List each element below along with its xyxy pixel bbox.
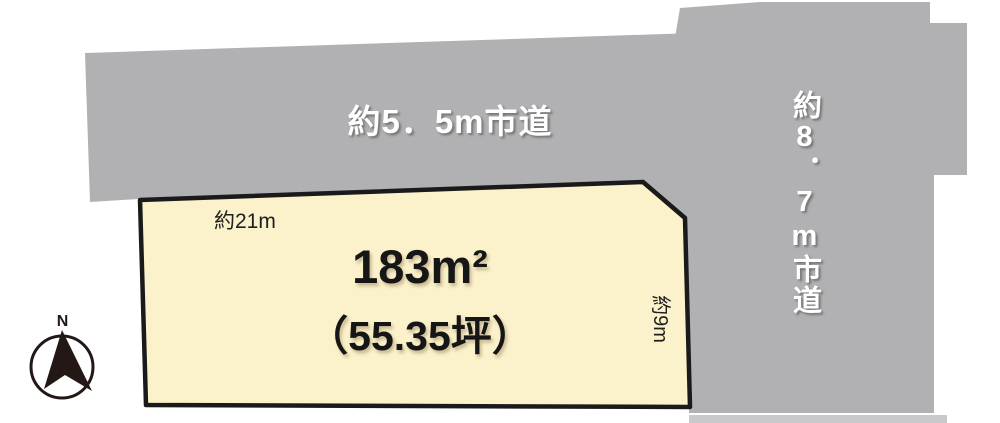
compass bbox=[31, 330, 93, 398]
top-road-label: 約5．5m市道 bbox=[250, 95, 650, 143]
plot-area-tsubo: （55.35坪） bbox=[165, 302, 675, 362]
land-plot-diagram: 約5．5m市道 約8．7m市道 約21m 約9m 183m² （55.35坪） … bbox=[0, 0, 1000, 423]
right-road-label: 約8．7m市道 bbox=[789, 90, 819, 316]
plot-frontage-dimension: 約21m bbox=[214, 205, 276, 235]
compass-north-label: N bbox=[50, 313, 75, 331]
plot-area-sqm: 183m² bbox=[165, 239, 675, 294]
road-edge-strip bbox=[689, 415, 947, 423]
